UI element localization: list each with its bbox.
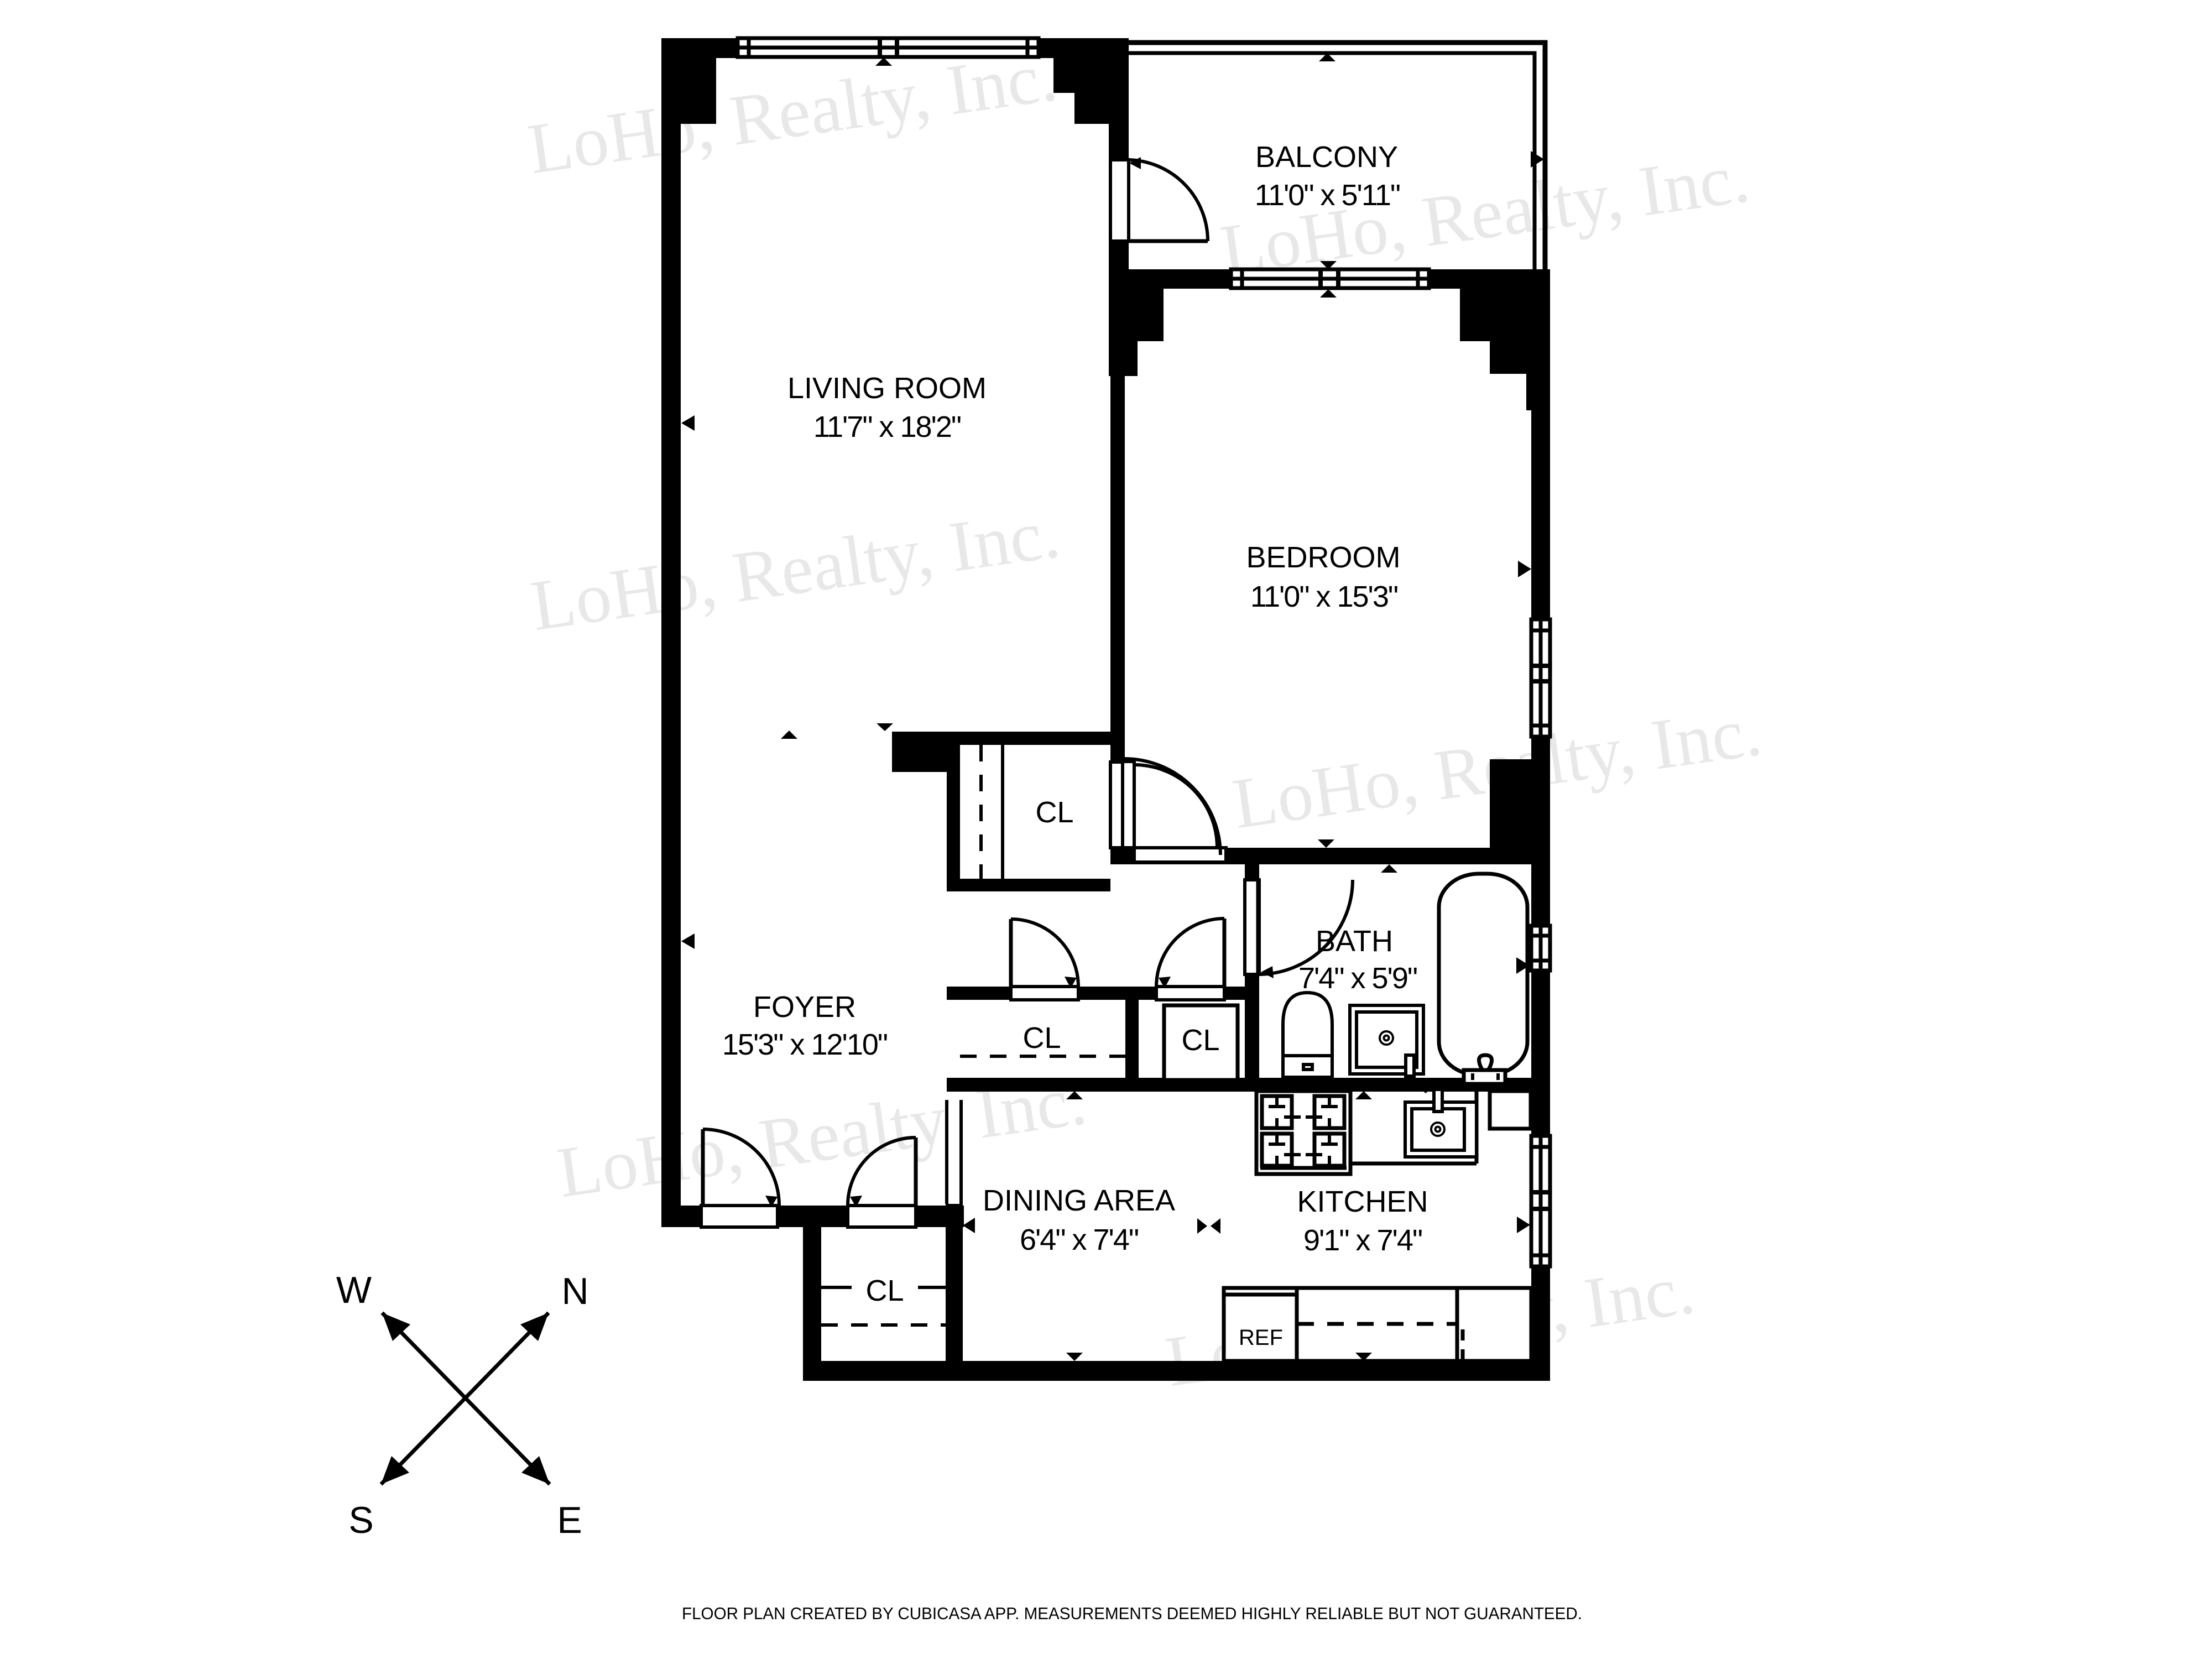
- svg-text:CL: CL: [865, 1274, 904, 1307]
- svg-text:E: E: [557, 1499, 582, 1541]
- svg-text:11'7" x 18'2": 11'7" x 18'2": [813, 410, 961, 444]
- svg-text:BALCONY: BALCONY: [1255, 140, 1398, 174]
- svg-text:15'3" x 12'10": 15'3" x 12'10": [722, 1028, 887, 1061]
- svg-text:7'4" x 5'9": 7'4" x 5'9": [1298, 962, 1417, 995]
- svg-text:CL: CL: [1181, 1024, 1219, 1057]
- svg-text:FOYER: FOYER: [753, 990, 856, 1024]
- svg-text:S: S: [348, 1499, 373, 1541]
- svg-text:BATH: BATH: [1316, 925, 1393, 958]
- svg-text:CL: CL: [1035, 796, 1073, 829]
- svg-text:CL: CL: [1022, 1021, 1061, 1055]
- svg-text:KITCHEN: KITCHEN: [1297, 1185, 1428, 1218]
- svg-text:W: W: [336, 1269, 372, 1311]
- svg-text:11'0" x 15'3": 11'0" x 15'3": [1250, 580, 1397, 613]
- svg-text:BEDROOM: BEDROOM: [1246, 541, 1400, 574]
- svg-text:N: N: [561, 1270, 588, 1312]
- svg-text:9'1" x 7'4": 9'1" x 7'4": [1303, 1224, 1422, 1257]
- svg-text:REF: REF: [1239, 1326, 1283, 1350]
- svg-text:11'0" x 5'11": 11'0" x 5'11": [1255, 179, 1400, 212]
- svg-text:FLOOR PLAN CREATED BY CUBICASA: FLOOR PLAN CREATED BY CUBICASA APP. MEAS…: [682, 1604, 1582, 1623]
- svg-text:DINING AREA: DINING AREA: [983, 1184, 1175, 1217]
- svg-text:LIVING ROOM: LIVING ROOM: [787, 372, 987, 405]
- svg-text:6'4" x 7'4": 6'4" x 7'4": [1020, 1223, 1138, 1256]
